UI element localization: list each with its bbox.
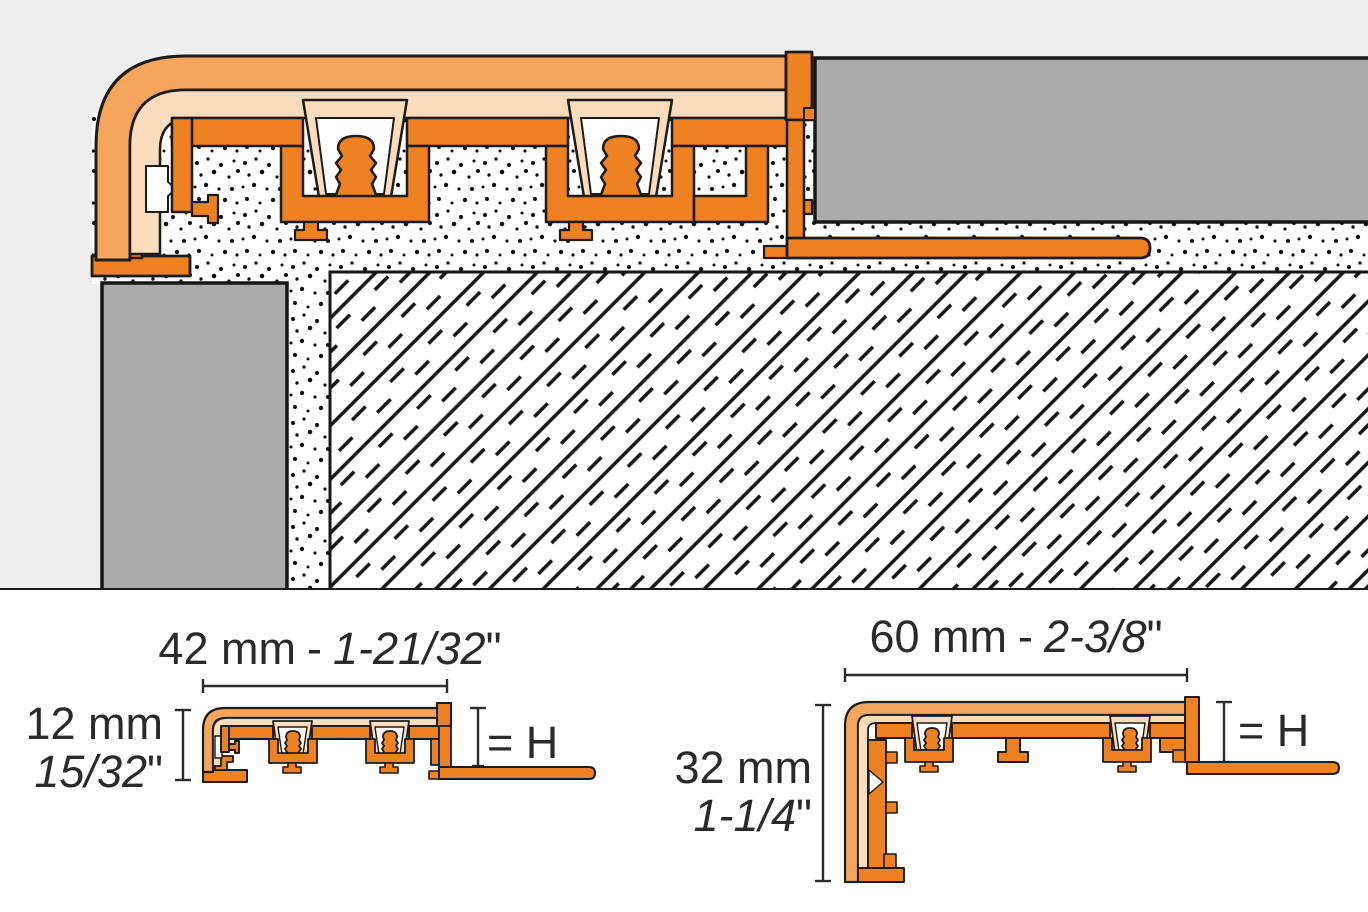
technical-drawing-page: 42 mm-1-21/32" 12 mm 15/32" = H 60 mm-2-…	[0, 0, 1368, 912]
width-unit-mark: "	[486, 623, 502, 674]
small-profile-h-note: = H	[487, 720, 558, 765]
small-profile-height-label: 12 mm 15/32"	[0, 700, 163, 796]
screed-hatch-pattern	[330, 272, 1368, 590]
large-profile-view	[815, 668, 1339, 882]
width-unit-mark: "	[1147, 611, 1163, 662]
large-profile-width-label: 60 mm-2-3/8"	[836, 614, 1196, 659]
anchoring-leg	[787, 238, 1150, 258]
riser-tile	[102, 283, 287, 590]
edge-trim-bar	[787, 120, 804, 240]
width-metric: 60 mm	[869, 611, 1007, 662]
height-metric: 32 mm	[640, 744, 812, 792]
height-unit-mark: "	[796, 790, 812, 841]
large-anchoring-leg	[1187, 762, 1339, 774]
large-profile-h-note: = H	[1238, 708, 1309, 753]
small-anchoring-leg	[439, 767, 595, 779]
installation-view	[0, 0, 1368, 590]
width-imperial: 2-3/8	[1044, 611, 1147, 662]
width-separator: -	[307, 623, 322, 674]
edge-trim-step	[804, 108, 815, 120]
width-imperial: 1-21/32	[333, 623, 486, 674]
stud-pocket-1	[303, 100, 407, 203]
width-metric: 42 mm	[158, 623, 296, 674]
height-metric: 12 mm	[0, 700, 163, 748]
h-note-text: = H	[1238, 705, 1309, 756]
profile-base-plate	[172, 118, 790, 146]
large-edge-lip	[1185, 697, 1199, 762]
large-foot	[858, 868, 904, 882]
height-unit-mark: "	[147, 746, 163, 797]
profile-left-wall	[172, 118, 192, 212]
small-edge-lip	[437, 703, 451, 726]
large-profile-height-label: 32 mm 1-1/4"	[640, 744, 812, 840]
height-imperial: 1-1/4	[693, 790, 796, 841]
stud-pocket-2	[568, 100, 672, 203]
installation-cross-section-svg	[0, 0, 1368, 590]
tread-tile	[815, 58, 1368, 222]
small-profile-width-label: 42 mm-1-21/32"	[140, 626, 520, 671]
h-note-text: = H	[487, 717, 558, 768]
width-separator: -	[1018, 611, 1033, 662]
height-imperial: 15/32	[34, 746, 147, 797]
